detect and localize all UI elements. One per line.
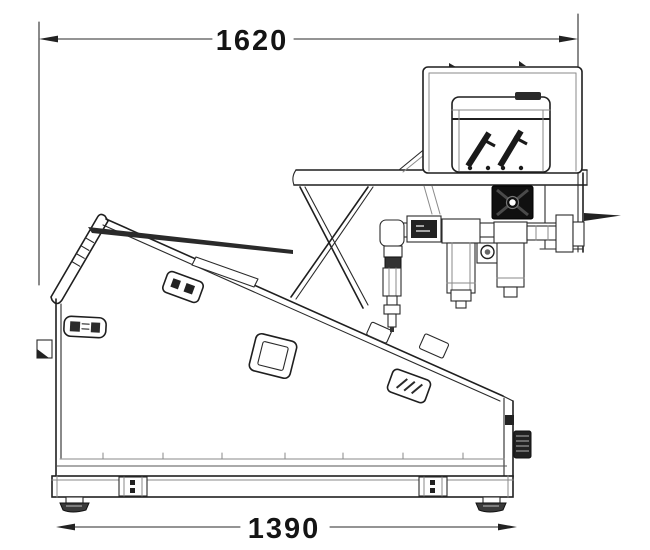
arrowhead-right-icon	[559, 36, 578, 43]
air-pipe-assembly	[380, 213, 621, 332]
bottom-seam-ticks	[103, 453, 463, 459]
base-assembly	[52, 476, 513, 512]
deck-front-edge	[103, 225, 500, 401]
regulator-unit-2	[494, 222, 527, 297]
cooling-fan	[492, 186, 533, 219]
bolt-block-right	[419, 477, 447, 496]
lift-lug-right-icon	[519, 61, 526, 66]
technical-drawing-page: 1620	[0, 0, 650, 550]
hatched-label	[386, 368, 432, 404]
deck-top-edge	[106, 219, 503, 396]
base-length-dimension: 1390	[56, 513, 517, 545]
outlet-fitting	[527, 213, 621, 252]
arrowhead-right-icon	[498, 524, 517, 531]
left-display-panel	[51, 214, 108, 303]
bolt-block-left	[119, 477, 147, 496]
lid-latch-icon	[515, 92, 541, 100]
solenoid-valve	[407, 216, 441, 242]
arrowhead-left-icon	[39, 36, 58, 43]
nameplate-diamond	[248, 332, 298, 379]
fan-hub-icon	[509, 199, 515, 205]
control-label	[64, 316, 107, 338]
right-side-connector	[514, 431, 531, 458]
bottom-dimension-value: 1390	[248, 513, 321, 545]
drain-knob	[477, 243, 498, 263]
arrowhead-left-icon	[56, 524, 75, 531]
x-frame-legs	[291, 187, 373, 308]
top-dimension-value: 1620	[216, 25, 289, 57]
outlet-nozzle-icon	[584, 213, 621, 221]
frl-hanger-bracket	[424, 186, 440, 214]
down-pipe	[380, 220, 404, 332]
side-bracket	[37, 340, 52, 358]
leveling-foot-right	[476, 497, 506, 512]
right-edge-bolt-icon	[505, 415, 514, 425]
electrical-cabinet	[423, 61, 582, 173]
leveling-foot-left	[60, 497, 89, 512]
filter-unit-1	[442, 219, 480, 308]
pointer-rod	[88, 227, 293, 254]
machine-side-view-drawing: 1620	[0, 0, 650, 550]
pump-motor-unit	[452, 92, 550, 172]
keypad-label	[161, 270, 204, 304]
